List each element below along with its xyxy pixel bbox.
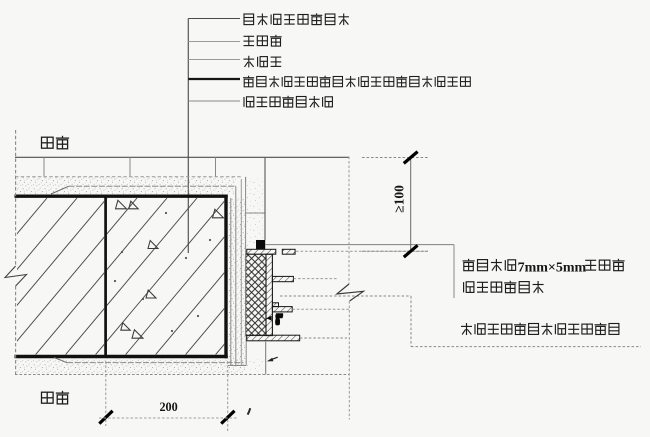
svg-text:≥100: ≥100 <box>392 185 407 213</box>
svg-text:200: 200 <box>159 400 177 414</box>
svg-text:7mm×5mm: 7mm×5mm <box>518 261 587 276</box>
